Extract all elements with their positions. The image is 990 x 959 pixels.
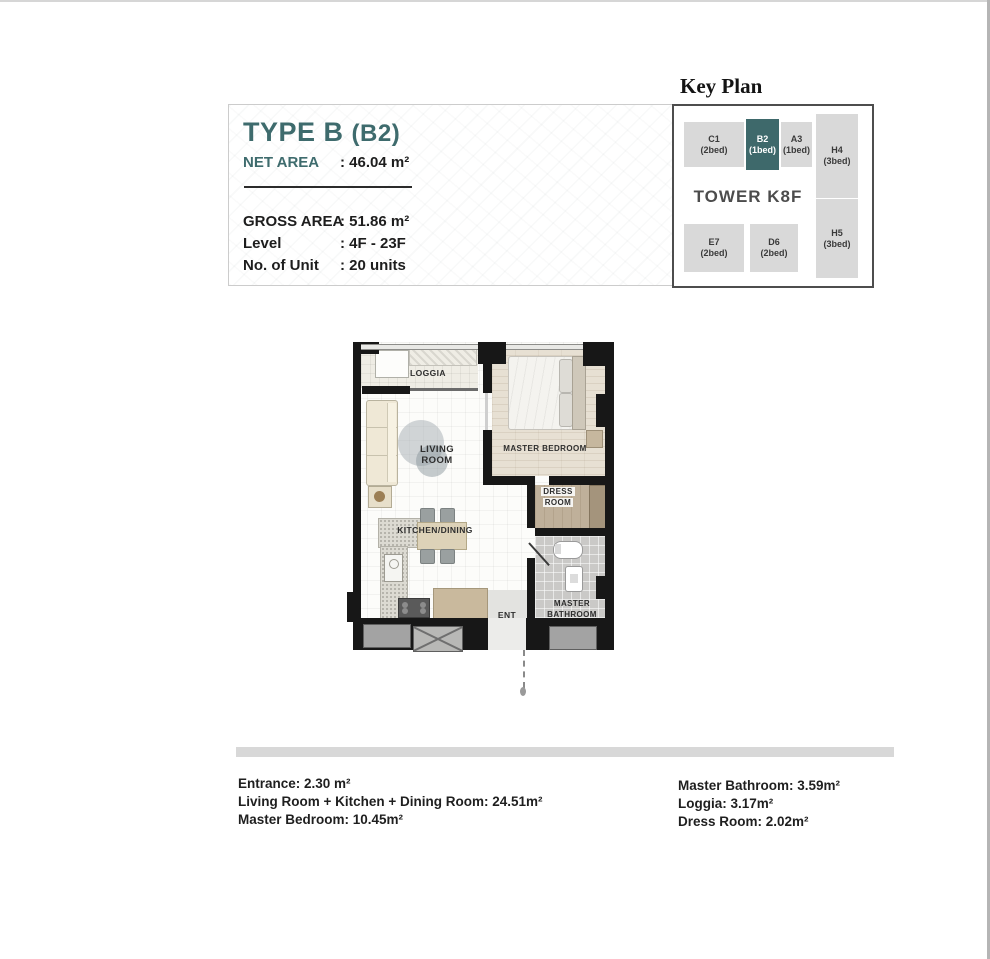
gross-area-label: GROSS AREA: [243, 213, 343, 230]
keyplan-unit-c1: C1 (2bed): [684, 122, 744, 167]
area-loggia: Loggia: 3.17m²: [678, 796, 773, 811]
wall: [535, 528, 614, 536]
entry-opening: [488, 618, 526, 650]
level-label: Level: [243, 235, 281, 252]
net-area-value: : 46.04 m²: [340, 154, 409, 171]
area-living-kitchen-dining: Living Room + Kitchen + Dining Room: 24.…: [238, 794, 543, 809]
unit-code: E7: [708, 237, 719, 248]
gross-area-value: : 51.86 m²: [340, 213, 409, 230]
floorplan-sheet: TYPE B (B2) NET AREA : 46.04 m² GROSS AR…: [0, 0, 990, 959]
unit-code: D6: [768, 237, 780, 248]
loggia-slider-track: [410, 388, 478, 391]
wall: [483, 344, 492, 393]
page-top-edge: [0, 0, 990, 2]
pillow: [559, 393, 573, 427]
wall: [549, 476, 614, 485]
wall-pillar: [596, 576, 614, 599]
unit-count-label: No. of Unit: [243, 257, 319, 274]
area-entrance: Entrance: 2.30 m²: [238, 776, 351, 791]
pillow: [559, 359, 573, 393]
keyplan-diagram: C1 (2bed) B2 (1bed) A3 (1bed) H4 (3bed) …: [672, 104, 874, 288]
unit-count-value: : 20 units: [340, 257, 406, 274]
entry-door-swing: [523, 650, 525, 688]
dining-chair: [420, 508, 435, 523]
unit-beds: (2bed): [701, 145, 728, 156]
area-master-bedroom: Master Bedroom: 10.45m²: [238, 812, 403, 827]
loggia-hatch: [409, 348, 477, 366]
living-room-label: LIVING ROOM: [402, 444, 472, 466]
unit-count-row: No. of Unit : 20 units: [243, 257, 503, 274]
type-name: TYPE B: [243, 117, 344, 147]
type-variant: (B2): [352, 120, 401, 147]
info-divider: [244, 186, 412, 188]
unit-code: A3: [791, 134, 803, 145]
keyplan-unit-h5: H5 (3bed): [816, 199, 858, 278]
wall-pillar: [347, 592, 361, 622]
keyplan-unit-b2-highlighted: B2 (1bed): [746, 119, 779, 170]
dining-chair: [420, 549, 435, 564]
sink: [565, 566, 583, 592]
tower-label: TOWER K8F: [682, 184, 814, 210]
level-value: : 4F - 23F: [340, 235, 406, 252]
sofa: [366, 400, 398, 486]
bedroom-window: [506, 344, 583, 350]
entry-door-knob: [520, 687, 526, 696]
unit-beds: (3bed): [824, 239, 851, 250]
service-box: [363, 624, 411, 648]
unit-code: H5: [831, 228, 843, 239]
wall: [527, 558, 535, 618]
dress-room-label: DRESS ROOM: [533, 486, 583, 508]
dining-chair: [440, 549, 455, 564]
keyplan-unit-e7: E7 (2bed): [684, 224, 744, 272]
kitchen-sink: [384, 554, 403, 582]
toilet: [553, 541, 583, 559]
area-dress-room: Dress Room: 2.02m²: [678, 814, 809, 829]
keyplan-title: Key Plan: [680, 74, 762, 99]
unit-beds: (2bed): [701, 248, 728, 259]
lower-cabinets: [433, 588, 488, 620]
gross-area-row: GROSS AREA : 51.86 m²: [243, 213, 503, 230]
wall: [483, 476, 531, 485]
unit-beds: (1bed): [783, 145, 810, 156]
loggia-label: LOGGIA: [393, 368, 463, 379]
unit-beds: (3bed): [824, 156, 851, 167]
net-area-label: NET AREA: [243, 154, 319, 171]
entrance-label: ENT: [489, 610, 525, 621]
keyplan-unit-d6: D6 (2bed): [750, 224, 798, 272]
dining-chair: [440, 508, 455, 523]
keyplan-unit-h4: H4 (3bed): [816, 114, 858, 198]
area-master-bathroom: Master Bathroom: 3.59m²: [678, 778, 840, 793]
service-box: [549, 626, 597, 650]
master-bathroom-label: MASTER BATHROOM: [537, 598, 607, 620]
bedroom-door: [485, 393, 488, 430]
unit-beds: (2bed): [761, 248, 788, 259]
keyplan-unit-a3: A3 (1bed): [781, 122, 812, 167]
wall-pillar: [596, 394, 614, 427]
kitchen-dining-label: KITCHEN/DINING: [383, 525, 487, 536]
level-row: Level : 4F - 23F: [243, 235, 503, 252]
stove: [398, 598, 430, 618]
headboard: [572, 356, 586, 430]
unit-type-title: TYPE B (B2): [243, 117, 400, 148]
unit-code: B2: [757, 134, 769, 145]
shaft-box: [413, 626, 463, 652]
unit-code: C1: [708, 134, 720, 145]
unit-code: H4: [831, 145, 843, 156]
divider-bar: [236, 747, 894, 757]
net-area-row: NET AREA : 46.04 m²: [243, 154, 319, 171]
wall: [483, 430, 492, 476]
wall: [353, 342, 361, 618]
loggia-slider: [362, 386, 410, 394]
master-bedroom-label: MASTER BEDROOM: [492, 443, 598, 454]
unit-beds: (1bed): [749, 145, 776, 156]
floor-plan: LOGGIA LIVING ROOM MASTER BEDROOM DRESS …: [353, 342, 614, 692]
loggia-window: [361, 344, 478, 350]
plant-table: [368, 486, 392, 508]
